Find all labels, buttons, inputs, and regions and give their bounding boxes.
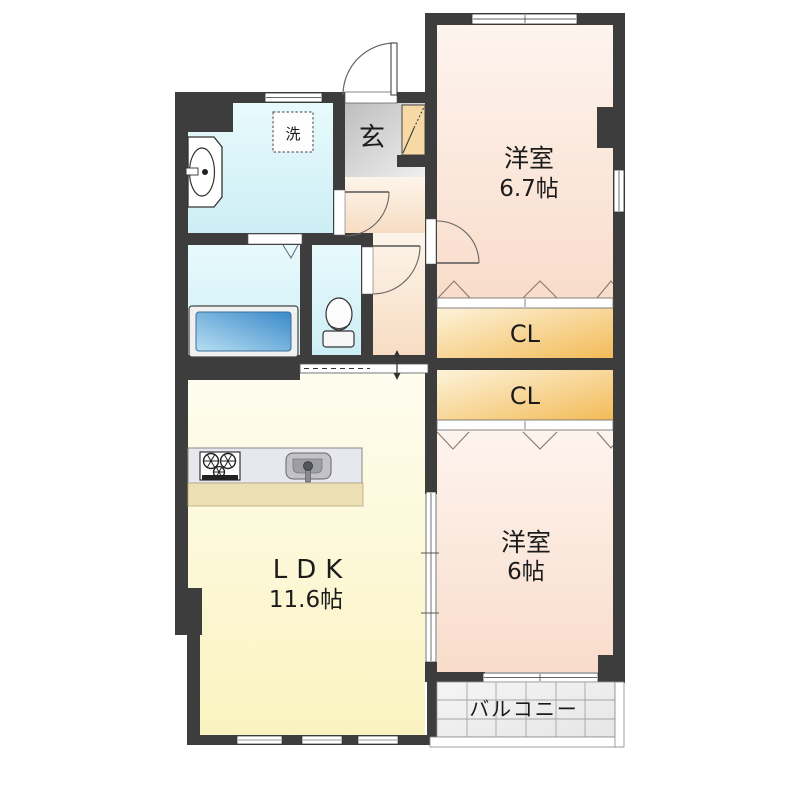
ldk-name: LDK [273,555,352,585]
room2-name: 洋室 [501,528,551,557]
bathtub-icon [189,306,298,357]
floor-plan-drawing: 玄 洗 洋室 6.7帖 CL CL 洋室 6帖 LDK 11.6帖 バルコニー [0,0,800,800]
opening-toilet-door [362,247,373,294]
closet1-track [437,298,613,308]
entrance-label: 玄 [359,123,385,153]
wall-under-shoebox [397,155,425,167]
kitchen-counter-lower [188,483,363,506]
wall-left-pillar [188,588,202,635]
room1-name: 洋室 [504,144,554,173]
window-room1-right [614,170,624,212]
stove-icon [200,452,240,480]
opening-room1-door [426,219,436,264]
floor-plan: 玄 洗 洋室 6.7帖 CL CL 洋室 6帖 LDK 11.6帖 バルコニー [0,0,800,800]
balcony-label: バルコニー [469,697,579,721]
opening-bathroom [248,234,302,244]
wall-bath-toilet [300,243,312,357]
wall-room1-left [425,13,437,368]
wall-above-slider [300,355,428,364]
window-room1-top [472,14,577,24]
ldk-size: 11.6帖 [269,587,343,613]
windows-ldk-bottom [237,736,398,744]
window-washroom-top [265,93,322,102]
toilet-icon [323,298,354,347]
balcony-rail-right [615,682,624,747]
wall-closet2-left [425,368,437,494]
hallway-lower [373,233,425,357]
closet1-label: CL [510,320,541,348]
wall-closet-mid [425,358,625,370]
room-ldk [188,368,425,735]
wall-under-bath [175,355,300,380]
laundry-label: 洗 [285,125,300,143]
wall-room2-pillar [598,655,625,683]
room1-size: 6.7帖 [499,176,559,202]
room2-size: 6帖 [507,559,545,585]
entrance-opening [345,92,397,103]
hallway-upper [345,177,425,234]
closet2-label: CL [510,382,541,410]
wall-top-mid [397,92,427,103]
opening-washroom-door [334,190,345,235]
balcony-rail-bottom [430,737,623,747]
wall-right [613,13,625,683]
wall-room1-pillar [597,107,613,148]
wall-balcony-left [427,672,437,737]
closet2-track [437,420,613,430]
window-room2-balcony [483,673,598,682]
kitchen-sink-icon [286,453,331,482]
wall-left-lower [187,635,200,745]
washbasin-icon [186,137,222,207]
